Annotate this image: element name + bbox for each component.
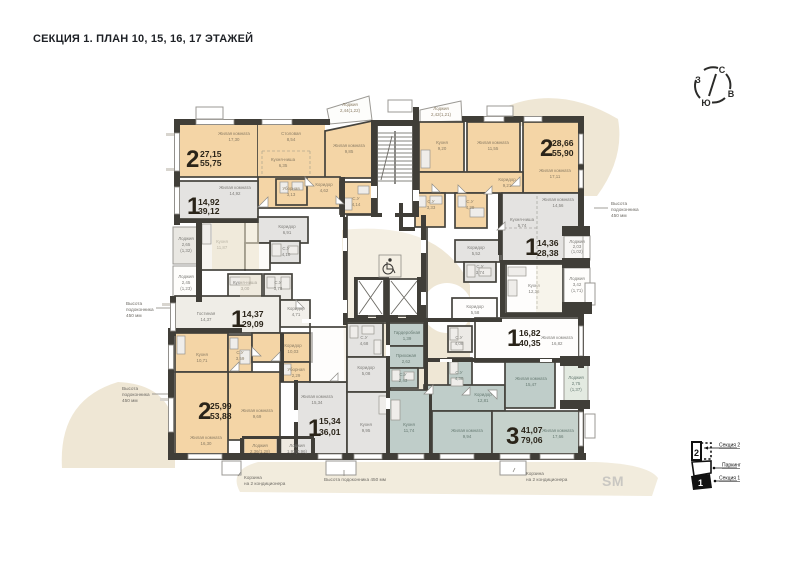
svg-text:Высота: Высота (611, 201, 627, 206)
svg-text:55,90: 55,90 (552, 148, 574, 158)
svg-text:4,10: 4,10 (282, 252, 291, 257)
svg-text:16,82: 16,82 (552, 341, 564, 346)
svg-text:11,55: 11,55 (488, 146, 499, 151)
svg-text:Лоджия: Лоджия (342, 102, 358, 107)
svg-text:79,06: 79,06 (521, 435, 543, 445)
svg-text:С.У: С.У (455, 335, 462, 340)
svg-text:Корзина: Корзина (244, 475, 262, 480)
svg-text:Высота: Высота (122, 386, 138, 391)
svg-text:(1,02): (1,02) (571, 249, 583, 254)
svg-text:Корзина: Корзина (526, 471, 544, 476)
svg-text:39,12: 39,12 (198, 206, 220, 216)
svg-text:Жилая комната: Жилая комната (301, 394, 333, 399)
svg-text:1,39: 1,39 (403, 336, 412, 341)
svg-text:4,29: 4,29 (466, 205, 475, 210)
svg-text:5,74: 5,74 (518, 223, 527, 228)
svg-text:(1,71): (1,71) (571, 288, 583, 293)
svg-text:Уборная: Уборная (282, 186, 300, 191)
svg-text:8,54: 8,54 (287, 137, 296, 142)
svg-text:25,99: 25,99 (210, 401, 232, 411)
svg-text:С.У: С.У (360, 335, 367, 340)
svg-text:С.У: С.У (274, 280, 281, 285)
svg-text:Жилая комната: Жилая комната (190, 435, 222, 440)
svg-text:Лоджия: Лоджия (289, 443, 305, 448)
svg-text:1: 1 (698, 478, 703, 488)
svg-text:С.У: С.У (455, 370, 462, 375)
svg-text:Жилая комната: Жилая комната (542, 197, 574, 202)
svg-text:9,21: 9,21 (503, 183, 512, 188)
svg-text:3,78: 3,78 (274, 286, 283, 291)
svg-text:Жилая комната: Жилая комната (218, 131, 250, 136)
svg-text:Жилая комната: Жилая комната (542, 428, 574, 433)
svg-text:Кухня: Кухня (403, 422, 415, 427)
svg-text:9,94: 9,94 (463, 434, 472, 439)
svg-text:на 2 кондиционера: на 2 кондиционера (526, 477, 568, 482)
svg-text:4,14: 4,14 (352, 202, 361, 207)
svg-text:14,37: 14,37 (242, 309, 264, 319)
svg-text:(1,37): (1,37) (570, 387, 582, 392)
svg-text:9,95: 9,95 (362, 428, 371, 433)
svg-text:Высота подоконника 450 мм: Высота подоконника 450 мм (324, 477, 386, 482)
svg-text:С.У: С.У (476, 264, 483, 269)
svg-text:Жилая комната: Жилая комната (219, 185, 251, 190)
svg-text:15,47: 15,47 (526, 382, 538, 387)
svg-text:15,34: 15,34 (319, 416, 341, 426)
svg-text:Жилая комната: Жилая комната (333, 143, 365, 148)
svg-text:подоконника: подоконника (122, 392, 150, 397)
svg-text:12,81: 12,81 (478, 398, 490, 403)
svg-text:Коридор: Коридор (278, 224, 296, 229)
svg-text:Ю: Ю (701, 98, 710, 108)
svg-text:5,08: 5,08 (362, 371, 371, 376)
svg-text:Коридор: Коридор (467, 245, 485, 250)
svg-text:4,68: 4,68 (360, 341, 369, 346)
svg-text:Секция 2: Секция 2 (719, 443, 740, 449)
svg-text:36,01: 36,01 (319, 427, 341, 437)
svg-text:2,44(1,22): 2,44(1,22) (340, 108, 361, 113)
svg-text:14,92: 14,92 (230, 191, 242, 196)
svg-text:29,09: 29,09 (242, 319, 264, 329)
svg-text:Столовая: Столовая (281, 131, 301, 136)
svg-text:6,35: 6,35 (279, 163, 288, 168)
svg-text:2,65: 2,65 (182, 242, 191, 247)
svg-text:4,08: 4,08 (455, 341, 464, 346)
svg-text:Коридор: Коридор (357, 365, 375, 370)
svg-text:16,82: 16,82 (519, 328, 541, 338)
svg-text:СЕКЦИЯ 1. ПЛАН 10, 15, 16, 17: СЕКЦИЯ 1. ПЛАН 10, 15, 16, 17 ЭТАЖЕЙ (33, 32, 253, 45)
svg-text:Коридор: Коридор (315, 182, 333, 187)
svg-text:5,58: 5,58 (471, 310, 480, 315)
svg-text:В: В (728, 89, 735, 99)
svg-text:450 мм: 450 мм (611, 213, 627, 218)
svg-text:15,34: 15,34 (312, 400, 324, 405)
svg-text:Секция 1: Секция 1 (719, 476, 740, 482)
svg-text:10,71: 10,71 (197, 358, 209, 363)
svg-text:28,38: 28,38 (537, 248, 559, 258)
svg-text:2,45: 2,45 (182, 280, 191, 285)
svg-text:2,43: 2,43 (399, 378, 408, 383)
svg-text:17,66: 17,66 (553, 434, 565, 439)
svg-text:подоконника: подоконника (126, 307, 154, 312)
svg-text:55,75: 55,75 (200, 158, 222, 168)
svg-text:Жилая комната: Жилая комната (241, 408, 273, 413)
svg-text:С.У: С.У (427, 199, 434, 204)
svg-text:3,59: 3,59 (236, 356, 245, 361)
svg-text:Жилая комната: Жилая комната (515, 376, 547, 381)
svg-text:2,29: 2,29 (292, 373, 301, 378)
svg-text:Лоджия: Лоджия (178, 274, 194, 279)
svg-text:4,62: 4,62 (320, 188, 329, 193)
svg-text:2: 2 (186, 146, 199, 173)
svg-text:Жилая комната: Жилая комната (541, 335, 573, 340)
svg-text:подоконника: подоконника (611, 207, 639, 212)
svg-text:Коридор: Коридор (466, 304, 484, 309)
svg-text:Кухня: Кухня (436, 140, 448, 145)
svg-text:Кухня: Кухня (360, 422, 372, 427)
svg-text:2,62: 2,62 (402, 359, 411, 364)
svg-text:Кухня: Кухня (196, 352, 208, 357)
svg-text:6,91: 6,91 (283, 230, 292, 235)
svg-text:З: З (695, 75, 701, 85)
svg-text:17,30: 17,30 (229, 137, 241, 142)
svg-text:450 мм: 450 мм (126, 313, 142, 318)
svg-text:С.У: С.У (466, 199, 473, 204)
svg-text:5,52: 5,52 (472, 251, 481, 256)
svg-text:3: 3 (506, 423, 519, 450)
svg-text:2: 2 (694, 448, 699, 458)
svg-text:4,71: 4,71 (292, 312, 301, 317)
svg-text:41,07: 41,07 (521, 425, 543, 435)
svg-text:2,75: 2,75 (572, 381, 581, 386)
svg-text:Прихожая: Прихожая (396, 353, 417, 358)
svg-text:14,56: 14,56 (553, 203, 565, 208)
svg-text:Жилая комната: Жилая комната (477, 140, 509, 145)
svg-text:3,42: 3,42 (573, 282, 582, 287)
svg-text:16,30: 16,30 (201, 441, 213, 446)
svg-text:1,92(0,96): 1,92(0,96) (287, 449, 308, 454)
svg-text:10,03: 10,03 (288, 349, 300, 354)
svg-text:11,74: 11,74 (404, 428, 415, 433)
svg-text:Лоджия: Лоджия (568, 375, 584, 380)
svg-text:С: С (719, 65, 726, 75)
svg-text:9,69: 9,69 (253, 414, 262, 419)
svg-text:Коридор: Коридор (284, 343, 302, 348)
svg-text:(1,32): (1,32) (180, 248, 192, 253)
svg-text:Кухня-ниша: Кухня-ниша (510, 217, 535, 222)
svg-text:на 2 кондиционера: на 2 кондиционера (244, 481, 286, 486)
svg-text:Гардеробная: Гардеробная (394, 330, 421, 335)
svg-text:Лоджия: Лоджия (178, 236, 194, 241)
svg-text:28,66: 28,66 (552, 138, 574, 148)
svg-text:2,42(1,21): 2,42(1,21) (431, 112, 452, 117)
svg-text:Коридор: Коридор (498, 177, 516, 182)
svg-text:(1,23): (1,23) (180, 286, 192, 291)
svg-text:Паркинг: Паркинг (722, 463, 741, 469)
svg-text:Коридор: Коридор (474, 392, 492, 397)
svg-text:4,38: 4,38 (455, 376, 464, 381)
svg-text:Гостиная: Гостиная (197, 311, 216, 316)
svg-text:Кухня-ниша: Кухня-ниша (271, 157, 296, 162)
svg-text:Лоджия: Лоджия (433, 106, 449, 111)
svg-text:С.У: С.У (236, 350, 243, 355)
svg-text:53,88: 53,88 (210, 411, 232, 421)
svg-text:С.У: С.У (352, 196, 359, 201)
svg-text:Лоджия: Лоджия (569, 276, 585, 281)
svg-text:3,33: 3,33 (427, 205, 436, 210)
svg-text:С.У: С.У (399, 372, 406, 377)
svg-text:9,85: 9,85 (345, 149, 354, 154)
svg-text:3,13: 3,13 (287, 192, 296, 197)
svg-text:17,11: 17,11 (550, 174, 561, 179)
svg-text:40,35: 40,35 (519, 338, 541, 348)
svg-text:С.У: С.У (282, 246, 289, 251)
svg-text:Высота: Высота (126, 301, 142, 306)
svg-text:2,36(1,28): 2,36(1,28) (250, 449, 271, 454)
svg-text:Жилая комната: Жилая комната (451, 428, 483, 433)
svg-text:14,36: 14,36 (537, 238, 559, 248)
svg-text:14,37: 14,37 (201, 317, 213, 322)
svg-text:Жилая комната: Жилая комната (539, 168, 571, 173)
svg-text:3,74: 3,74 (476, 270, 485, 275)
svg-text:450 мм: 450 мм (122, 398, 138, 403)
svg-text:9,20: 9,20 (438, 146, 447, 151)
svg-text:Лоджия: Лоджия (252, 443, 268, 448)
svg-text:SM: SM (602, 473, 624, 489)
svg-text:Уборная: Уборная (287, 367, 305, 372)
